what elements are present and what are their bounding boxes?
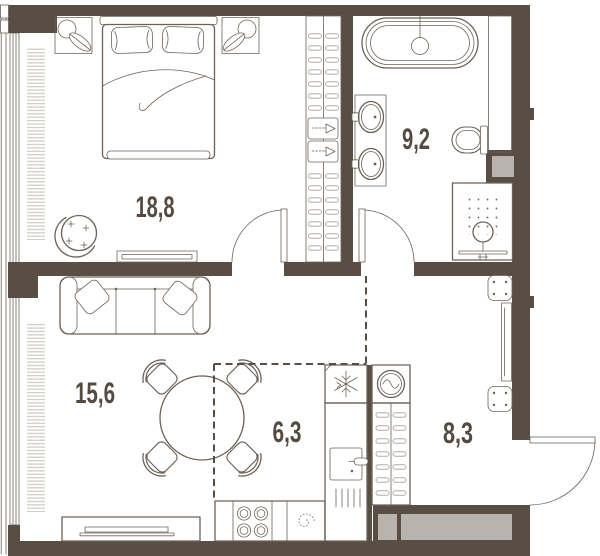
toilet-icon xyxy=(452,126,488,154)
stool-icon xyxy=(488,276,512,301)
room-label-bedroom: 18,8 xyxy=(136,191,175,224)
radiator-icon xyxy=(27,323,45,512)
duct-shaft-icon xyxy=(492,156,514,177)
room-label-living-room: 15,6 xyxy=(75,377,115,410)
floor-plan: 18,8 9,2 15,6 6,3 8,3 xyxy=(0,0,600,556)
stool-icon xyxy=(488,387,512,412)
pillow-icon xyxy=(111,26,153,53)
storage-box-icon xyxy=(308,141,338,162)
pillow-icon xyxy=(162,26,204,53)
room-label-bathroom: 9,2 xyxy=(402,123,430,156)
room-label-kitchen: 6,3 xyxy=(273,416,302,449)
radiator-icon xyxy=(27,48,45,240)
room-label-hallway: 8,3 xyxy=(443,417,473,450)
storage-box-icon xyxy=(308,118,338,139)
floor-plan-canvas: 18,8 9,2 15,6 6,3 8,3 xyxy=(0,0,600,556)
